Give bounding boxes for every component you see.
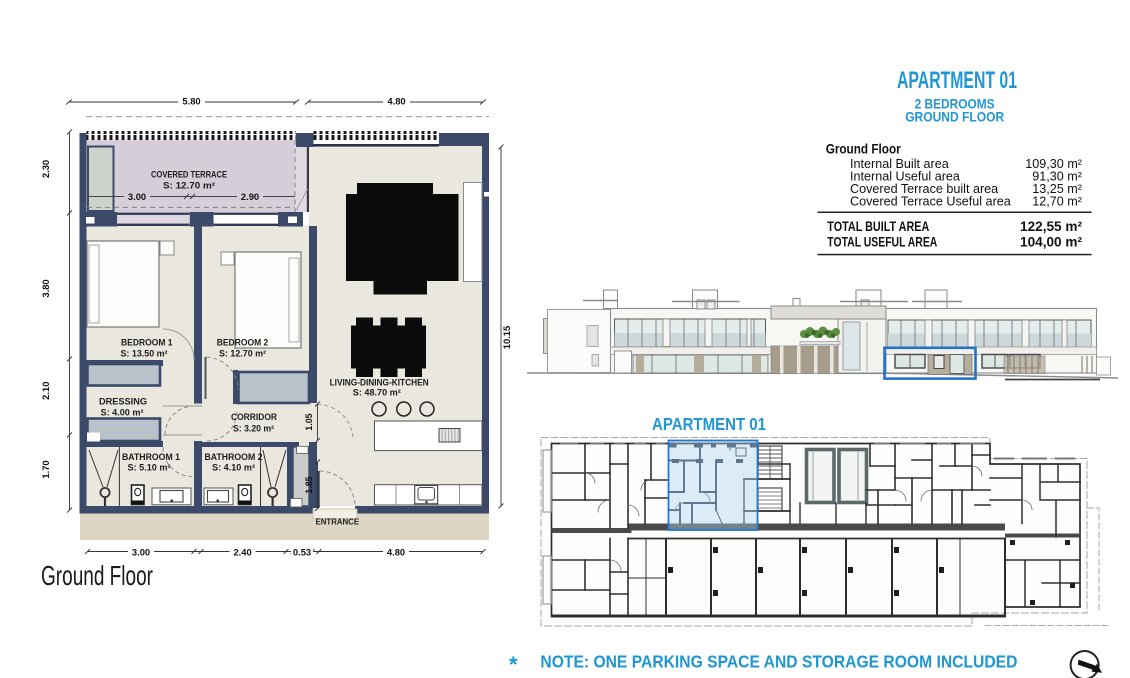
svg-text:S: 12.70 m²: S: 12.70 m² [219, 349, 266, 359]
svg-text:3.00: 3.00 [128, 191, 146, 202]
svg-text:LIVING-DINING-KITCHEN: LIVING-DINING-KITCHEN [330, 378, 429, 388]
svg-text:TOTAL USEFUL AREA: TOTAL USEFUL AREA [827, 235, 937, 250]
svg-text:S: 4.10 m²: S: 4.10 m² [212, 463, 255, 473]
svg-text:S: 12.70 m²: S: 12.70 m² [163, 181, 215, 191]
svg-text:APARTMENT 01: APARTMENT 01 [897, 67, 1017, 94]
svg-text:4.80: 4.80 [387, 547, 405, 558]
svg-text:Ground Floor: Ground Floor [41, 560, 153, 591]
svg-text:*: * [509, 652, 518, 677]
svg-text:APARTMENT 01: APARTMENT 01 [652, 414, 766, 434]
svg-text:TOTAL BUILT AREA: TOTAL BUILT AREA [827, 219, 929, 234]
svg-text:2.10: 2.10 [40, 382, 51, 400]
svg-text:1.05: 1.05 [304, 413, 314, 430]
svg-text:10.15: 10.15 [501, 326, 512, 349]
svg-text:4.80: 4.80 [387, 96, 405, 107]
svg-text:104,00 m²: 104,00 m² [1020, 235, 1082, 250]
svg-text:Ground Floor: Ground Floor [826, 141, 901, 157]
svg-text:2.90: 2.90 [241, 191, 259, 202]
svg-text:COVERED TERRACE: COVERED TERRACE [151, 170, 227, 180]
svg-text:5.80: 5.80 [182, 96, 200, 107]
svg-text:BEDROOM 1: BEDROOM 1 [121, 338, 173, 348]
svg-text:S: 3.20 m²: S: 3.20 m² [233, 424, 274, 434]
svg-text:BATHROOM 2: BATHROOM 2 [205, 452, 263, 462]
svg-text:3.00: 3.00 [132, 547, 150, 558]
svg-text:ENTRANCE: ENTRANCE [316, 517, 360, 527]
svg-text:CORRIDOR: CORRIDOR [231, 412, 277, 422]
svg-text:0.53: 0.53 [293, 547, 311, 558]
svg-text:Covered Terrace Useful area: Covered Terrace Useful area [850, 195, 1011, 209]
svg-text:DRESSING: DRESSING [99, 397, 147, 407]
svg-text:NOTE: ONE PARKING SPACE AND ST: NOTE: ONE PARKING SPACE AND STORAGE ROOM… [540, 652, 1017, 672]
svg-text:2.40: 2.40 [233, 547, 251, 558]
svg-text:GROUND FLOOR: GROUND FLOOR [905, 109, 1004, 125]
svg-text:BEDROOM 2: BEDROOM 2 [217, 338, 269, 348]
svg-text:S: 4.00 m²: S: 4.00 m² [101, 408, 144, 418]
svg-text:2.30: 2.30 [40, 160, 51, 178]
svg-text:1.85: 1.85 [304, 476, 314, 493]
svg-text:12,70 m²: 12,70 m² [1032, 195, 1082, 209]
svg-text:S: 5.10 m²: S: 5.10 m² [128, 463, 171, 473]
svg-text:S: 48.70 m²: S: 48.70 m² [353, 388, 401, 398]
svg-text:3.80: 3.80 [40, 279, 51, 297]
svg-text:BATHROOM 1: BATHROOM 1 [122, 452, 180, 462]
svg-text:S: 13.50 m²: S: 13.50 m² [121, 349, 168, 359]
svg-text:122,55 m²: 122,55 m² [1020, 219, 1082, 234]
svg-text:1.70: 1.70 [40, 460, 51, 478]
